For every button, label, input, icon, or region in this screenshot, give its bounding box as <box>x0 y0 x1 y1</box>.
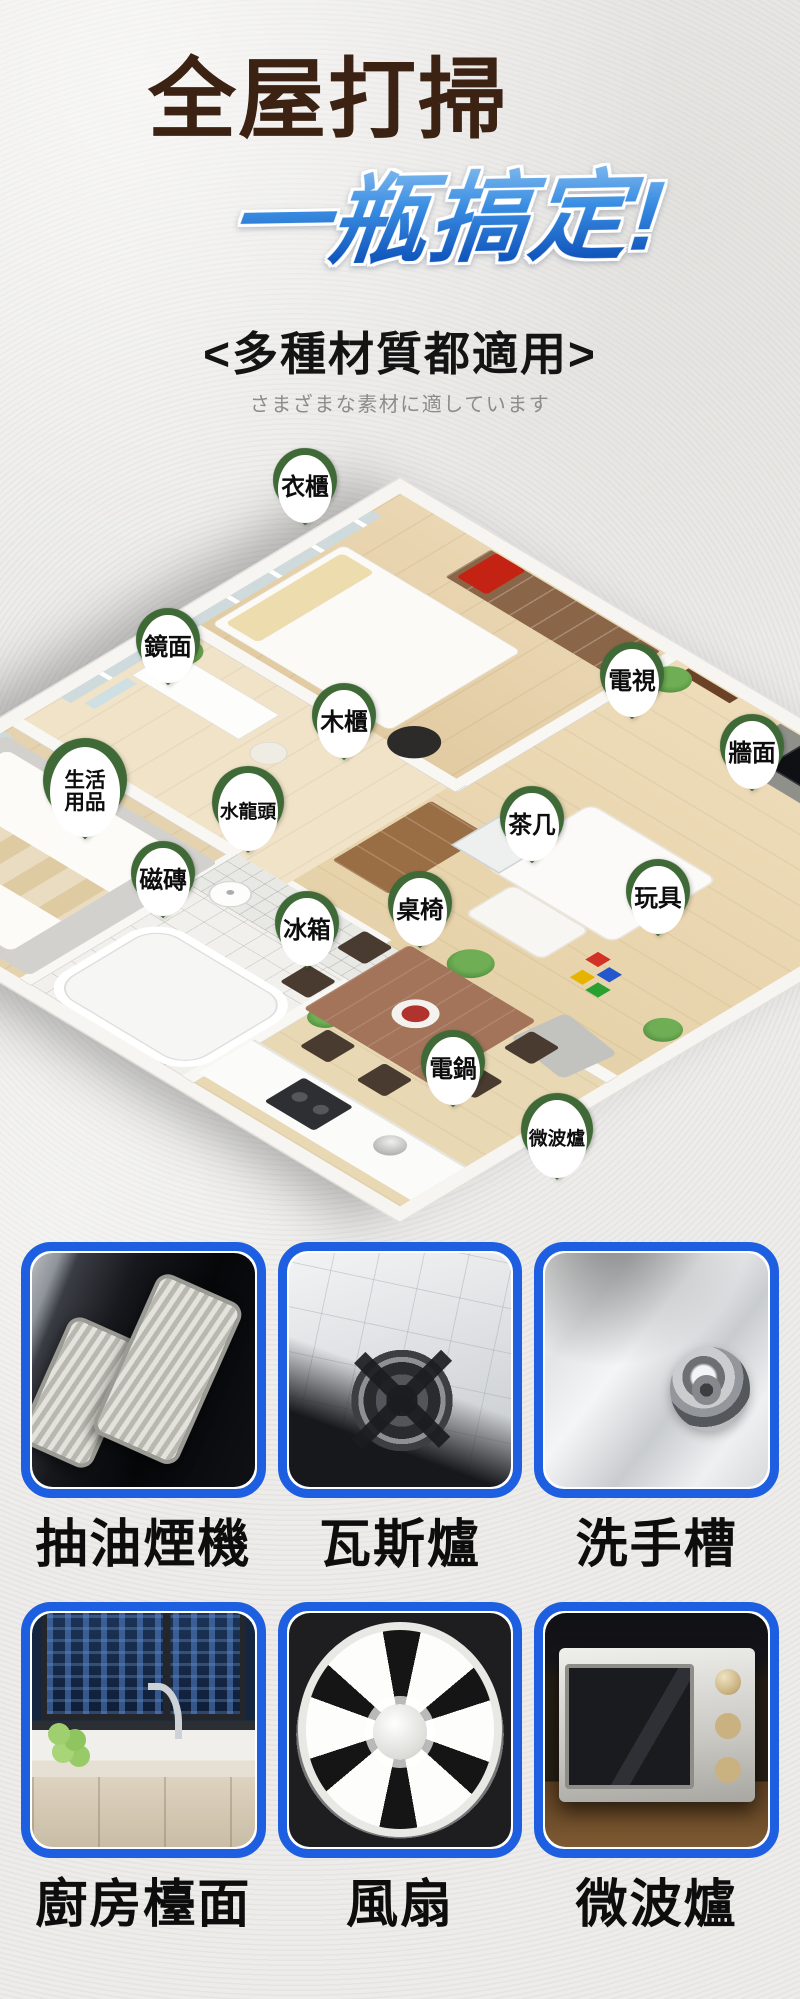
tagline: <多種材質都適用> <box>0 318 800 384</box>
gallery-photo <box>32 1253 255 1487</box>
gallery-photo-card <box>21 1602 266 1858</box>
gallery-photo <box>289 1253 512 1487</box>
gallery-caption: 瓦斯爐 <box>319 1516 481 1576</box>
surface-gallery: 抽油煙機 瓦斯爐 洗手槽 <box>0 1242 800 1962</box>
pin-label: 衣櫃 <box>281 476 328 502</box>
gallery-item: 微波爐 <box>543 1602 770 1962</box>
room-pin: 衣櫃 <box>273 448 337 530</box>
gallery-item: 風扇 <box>287 1602 514 1962</box>
gallery-photo-card <box>21 1242 266 1498</box>
gallery-item: 廚房檯面 <box>30 1602 257 1962</box>
gallery-photo <box>289 1613 512 1847</box>
gallery-photo-card <box>278 1242 523 1498</box>
apartment-map: 衣櫃 鏡面 電視 木櫃 牆面 <box>0 402 800 1250</box>
gallery-item: 瓦斯爐 <box>287 1242 514 1602</box>
gallery-caption: 風扇 <box>346 1876 454 1936</box>
gallery-photo-card <box>534 1242 779 1498</box>
map-pin-icon <box>260 435 351 526</box>
gallery-item: 洗手槽 <box>543 1242 770 1602</box>
room-illustration <box>0 477 800 1224</box>
gallery-photo <box>545 1253 768 1487</box>
gallery-photo <box>545 1613 768 1847</box>
promo-page: 全屋打掃 一瓶搞定! <多種材質都適用> さまざまな素材に適しています <box>0 0 800 1999</box>
page-title: 全屋打掃 <box>148 56 508 148</box>
gallery-caption: 抽油煙機 <box>35 1516 251 1576</box>
gallery-caption: 洗手槽 <box>576 1516 738 1576</box>
page-subtitle: 一瓶搞定! <box>224 162 671 277</box>
gallery-photo <box>32 1613 255 1847</box>
gallery-caption: 微波爐 <box>576 1876 738 1936</box>
gallery-item: 抽油煙機 <box>30 1242 257 1602</box>
gallery-photo-card <box>278 1602 523 1858</box>
gallery-photo-card <box>534 1602 779 1858</box>
gallery-caption: 廚房檯面 <box>35 1876 251 1936</box>
